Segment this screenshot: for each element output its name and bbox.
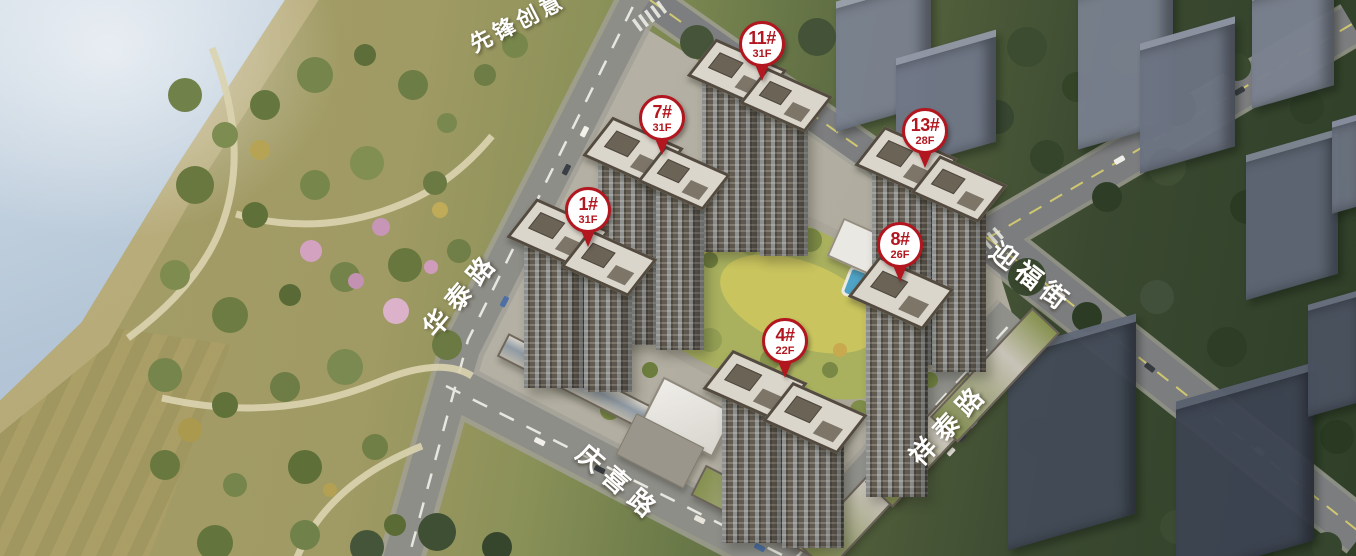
pin-building-number: 7# <box>652 103 671 121</box>
pin-floor-count: 22F <box>776 346 795 357</box>
pin-building-number: 11# <box>748 29 776 47</box>
building-pin-7[interactable]: 7#31F <box>639 95 685 155</box>
building-pin-4[interactable]: 4#22F <box>762 318 808 378</box>
building-pin-8[interactable]: 8#26F <box>877 222 923 282</box>
pin-floor-count: 31F <box>753 49 772 60</box>
pin-circle: 13#28F <box>902 108 948 154</box>
aerial-site-plan: 华泰路庆喜路祥泰路迎福街先锋创意 1#31F4#22F7#31F8#26F11#… <box>0 0 1356 556</box>
pin-floor-count: 28F <box>916 136 935 147</box>
pin-building-number: 4# <box>775 326 794 344</box>
building-pin-layer: 1#31F4#22F7#31F8#26F11#31F13#28F <box>0 0 1356 556</box>
building-pin-1[interactable]: 1#31F <box>565 187 611 247</box>
pin-floor-count: 31F <box>579 215 598 226</box>
pin-floor-count: 26F <box>891 250 910 261</box>
building-pin-13[interactable]: 13#28F <box>902 108 948 168</box>
pin-circle: 4#22F <box>762 318 808 364</box>
pin-circle: 7#31F <box>639 95 685 141</box>
pin-building-number: 1# <box>578 195 597 213</box>
pin-building-number: 13# <box>911 116 940 134</box>
pin-circle: 1#31F <box>565 187 611 233</box>
pin-building-number: 8# <box>890 230 909 248</box>
pin-circle: 8#26F <box>877 222 923 268</box>
pin-circle: 11#31F <box>739 21 785 67</box>
building-pin-11[interactable]: 11#31F <box>739 21 785 81</box>
pin-floor-count: 31F <box>653 123 672 134</box>
